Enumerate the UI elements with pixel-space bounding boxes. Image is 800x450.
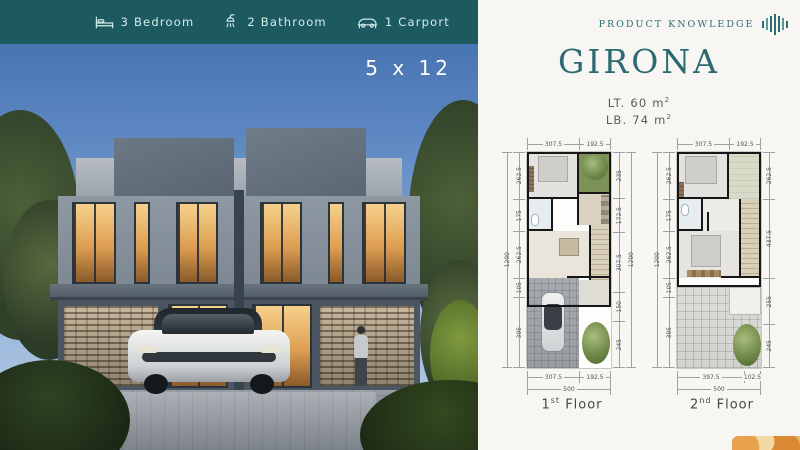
window-upper [134,202,150,284]
floor2-label: 2nd Floor [652,396,792,412]
dim-label: 262.5 [666,167,673,184]
dim-label: 262.5 [516,167,523,184]
shower-icon [224,14,240,30]
plan-car-roof [544,304,562,330]
dim-label: 245 [616,339,623,350]
dim-label: 437.5 [766,230,773,247]
dims-bottom: 397.5 102.5 [677,371,761,383]
spec-label: 2 Bathroom [247,15,326,29]
dims-right-total: 1200 [626,152,636,368]
dim-label: 150 [616,301,623,312]
plan-tree [733,324,761,366]
flyer: 3 Bedroom 2 Bathroom 1 Carport 5 x 12 [0,0,800,450]
spec-label: 1 Carport [385,15,450,29]
dim-label: 245 [766,340,773,351]
car-icon [357,15,378,29]
dim-label: 175 [516,210,523,221]
plan-tree [582,322,610,364]
roof-volume-right [246,128,366,204]
info-panel: PRODUCT KNOWLEDGE GIRONA LT. 60 m2 LB. 7… [478,0,800,450]
dim-label: 102.5 [742,374,763,381]
dim-label: 105 [516,282,523,293]
parked-car [128,308,290,394]
dim-label: 192.5 [584,141,605,148]
corner-photo-fragment [732,436,800,450]
land-area: LT. 60 m2 [478,96,800,110]
specs-bar: 3 Bedroom 2 Bathroom 1 Carport [0,0,478,44]
brand-row: PRODUCT KNOWLEDGE [599,12,788,36]
dims-bottom-total: 500 [677,383,761,395]
house-walls [677,152,761,287]
dim-label: 262.5 [666,246,673,263]
floor-plan-1: 307.5 192.5 1200 262.5 175 262.5 105 395 [502,138,642,423]
dim-label: 255 [766,296,773,307]
dim-label: 172.5 [616,207,623,224]
product-title: GIRONA [478,42,800,81]
bed-icon [95,15,114,29]
dims-left: 262.5 175 262.5 105 395 [513,152,525,368]
dim-label: 395 [516,327,523,338]
plan-canvas-floor2 [677,152,761,368]
window-upper [260,202,302,284]
skylight [729,287,761,315]
dim-label: 307.5 [543,141,564,148]
dim-label: 397.5 [700,374,721,381]
dims-top: 307.5 192.5 [527,138,611,150]
lot-size-overlay: 5 x 12 [365,56,452,80]
person-silhouette [352,326,370,388]
window-upper [362,202,406,284]
spec-carport: 1 Carport [357,15,450,29]
dims-bottom: 307.5 192.5 [527,371,611,383]
dim-label: 307.5 [543,374,564,381]
dim-label: 262.5 [766,167,773,184]
plan-canvas-floor1 [527,152,611,368]
driveway [108,392,376,450]
dims-left-total: 1200 [502,152,512,368]
dims-top: 307.5 192.5 [677,138,761,150]
dims-bottom-total: 500 [527,383,611,395]
floor1-label: 1st Floor [502,396,642,412]
brand-logo-icon [762,12,789,36]
dim-label: 262.5 [516,246,523,263]
spec-label: 3 Bedroom [121,15,195,29]
building-area: LB. 74 m2 [478,113,800,127]
dims-right: 235 172.5 307.5 150 245 [613,152,625,368]
roof-volume-left [114,138,234,204]
window-upper [176,202,218,284]
dim-label: 307.5 [616,254,623,271]
dims-left-total: 1200 [652,152,662,368]
dim-label: 395 [666,327,673,338]
dim-label: 192.5 [584,374,605,381]
brand-label: PRODUCT KNOWLEDGE [599,19,755,30]
dims-left: 262.5 175 262.5 105 395 [663,152,675,368]
dims-right: 262.5 437.5 255 245 [763,152,775,368]
dim-label: 105 [666,282,673,293]
spec-bathroom: 2 Bathroom [224,14,326,30]
dim-label: 192.5 [734,141,755,148]
dim-label: 307.5 [693,141,714,148]
window-upper [328,202,344,284]
house-photo: 3 Bedroom 2 Bathroom 1 Carport 5 x 12 [0,0,478,450]
window-upper [72,202,116,284]
dim-label: 175 [666,210,673,221]
floor-plan-2: 307.5 192.5 1200 262.5 175 262.5 105 395 [652,138,792,423]
dim-label: 235 [616,170,623,181]
spec-bedroom: 3 Bedroom [95,15,195,29]
